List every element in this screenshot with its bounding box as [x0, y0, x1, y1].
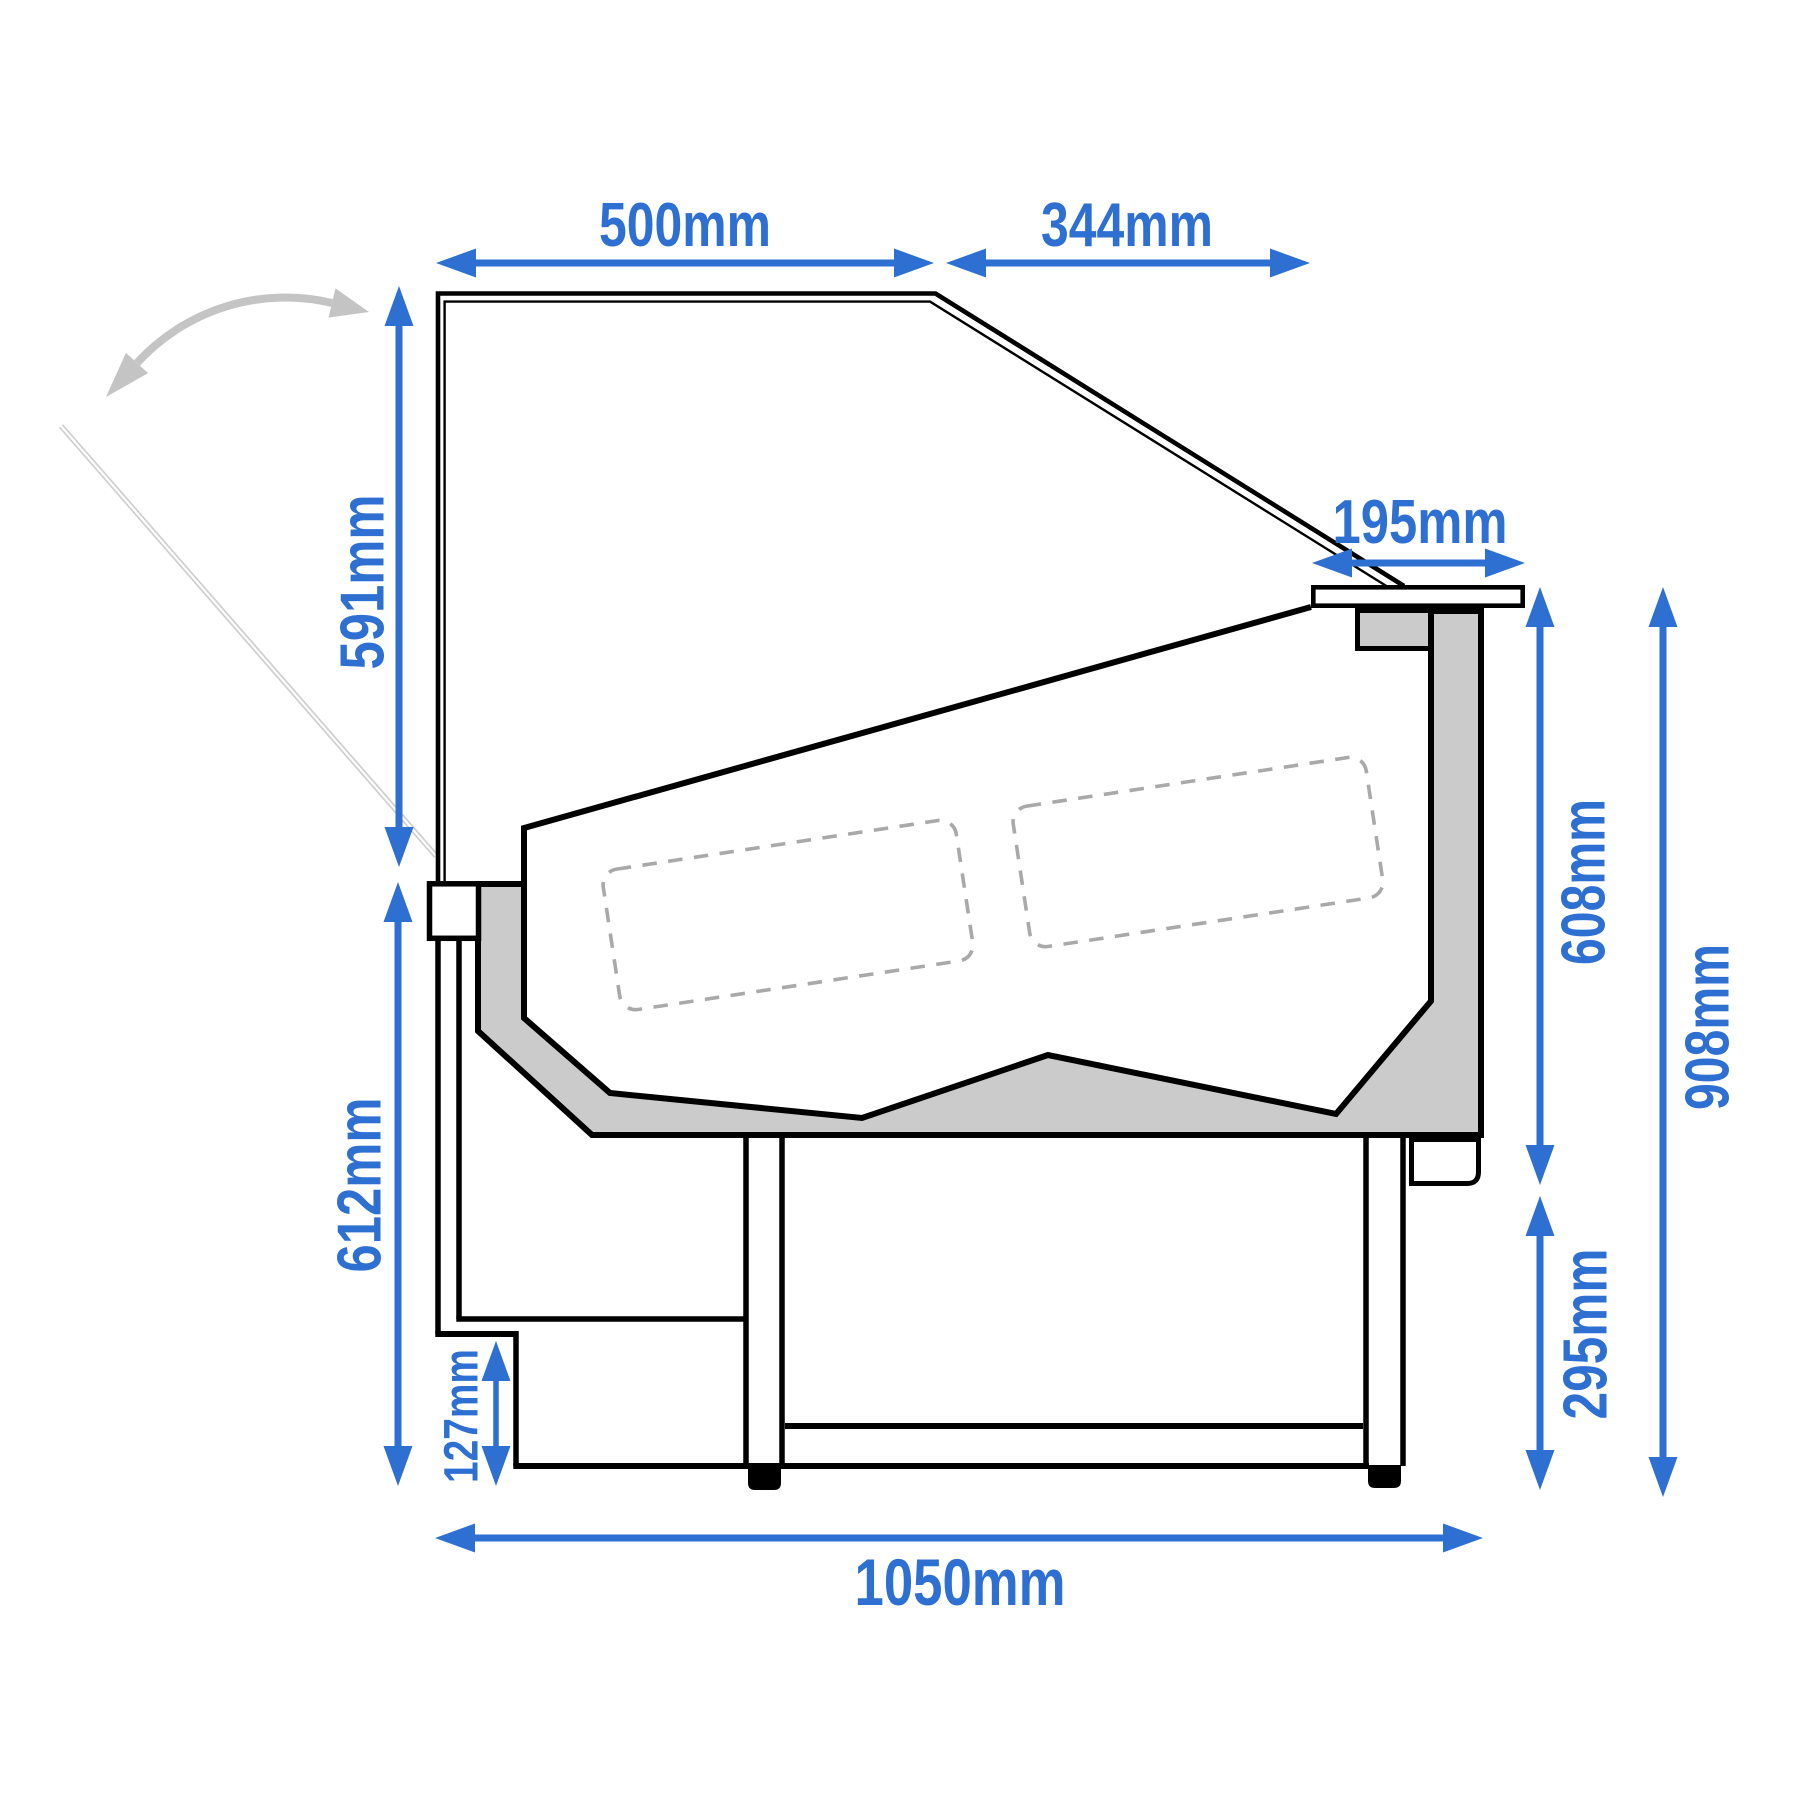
svg-text:500mm: 500mm — [599, 191, 771, 260]
svg-text:344mm: 344mm — [1041, 191, 1213, 260]
svg-text:591mm: 591mm — [329, 495, 398, 670]
svg-text:608mm: 608mm — [1550, 799, 1619, 965]
svg-text:295mm: 295mm — [1552, 1249, 1621, 1420]
svg-text:1050mm: 1050mm — [855, 1545, 1066, 1619]
svg-text:908mm: 908mm — [1674, 944, 1743, 1110]
svg-text:612mm: 612mm — [326, 1098, 395, 1273]
svg-text:195mm: 195mm — [1333, 488, 1508, 557]
svg-text:127mm: 127mm — [435, 1349, 488, 1483]
